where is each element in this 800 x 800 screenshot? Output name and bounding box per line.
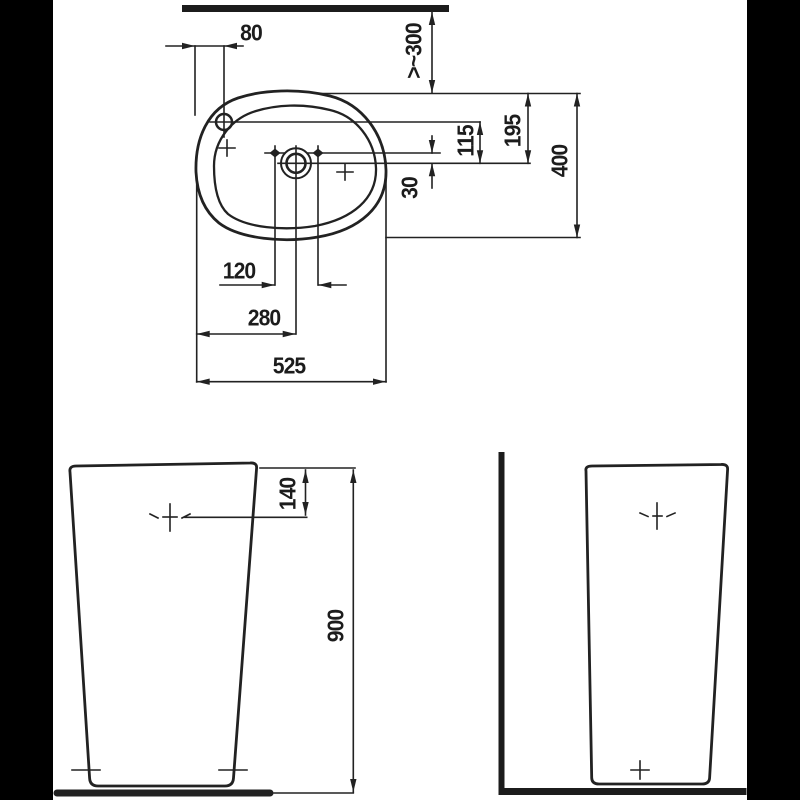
dim-label-tap-offset: 80 (240, 20, 262, 47)
front-elevation-view (57, 463, 357, 793)
floor-line-side (499, 788, 747, 795)
fixing-cross (631, 761, 649, 779)
side-taphole-marker-right (308, 146, 440, 285)
dim-label-overall-width: 525 (273, 353, 306, 380)
dim-label-overall-depth: 400 (547, 145, 574, 178)
dim-label-rim-to-fixing: 140 (275, 478, 302, 511)
dim-label-overall-height: 900 (323, 610, 350, 643)
dim-label-sidehole-spacing: 120 (223, 258, 256, 285)
hidden-fixing-cross (640, 503, 675, 529)
technical-drawing-canvas: 80 >~300 195 115 30 400 120 280 525 140 … (0, 0, 800, 800)
plan-view (166, 5, 580, 385)
pedestal-front-outline (70, 463, 257, 786)
dim-label-left-edge-to-drain: 280 (248, 305, 281, 332)
drain (278, 146, 530, 334)
dim-label-rear-to-drain: 195 (500, 115, 527, 148)
dim-label-sidehole-to-drain: 30 (397, 177, 424, 199)
side-elevation-view (499, 452, 747, 795)
wall-line-side (499, 452, 505, 792)
reference-cross (337, 164, 353, 180)
wall-line (182, 5, 449, 12)
drawing-linework (0, 0, 800, 800)
dim-label-taphole-to-drain: 115 (453, 125, 480, 156)
hidden-fixing-cross (150, 504, 190, 531)
dim-label-wall-clearance: >~300 (401, 23, 428, 78)
reference-cross (219, 140, 235, 156)
basin-bowl-rim (214, 106, 376, 229)
